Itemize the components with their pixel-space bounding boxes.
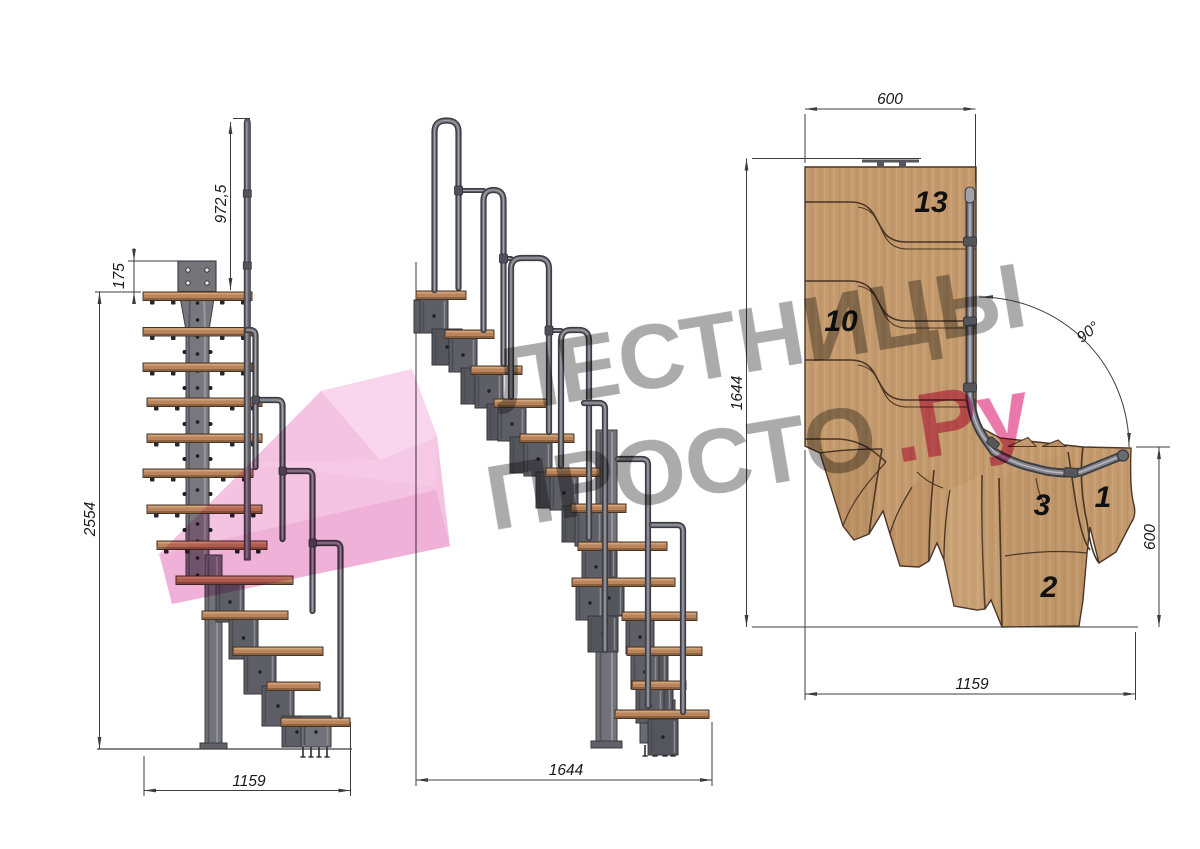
svg-text:1159: 1159 [955,676,989,693]
svg-text:2: 2 [1040,571,1058,604]
svg-text:1644: 1644 [549,762,584,779]
svg-text:1159: 1159 [232,773,266,790]
svg-text:600: 600 [877,91,903,108]
svg-text:1: 1 [1095,481,1112,514]
svg-text:175: 175 [111,263,128,289]
svg-text:600: 600 [1142,524,1159,550]
svg-text:2554: 2554 [82,501,99,537]
svg-text:13: 13 [914,186,948,219]
svg-text:972,5: 972,5 [213,184,230,223]
svg-text:3: 3 [1034,489,1051,522]
